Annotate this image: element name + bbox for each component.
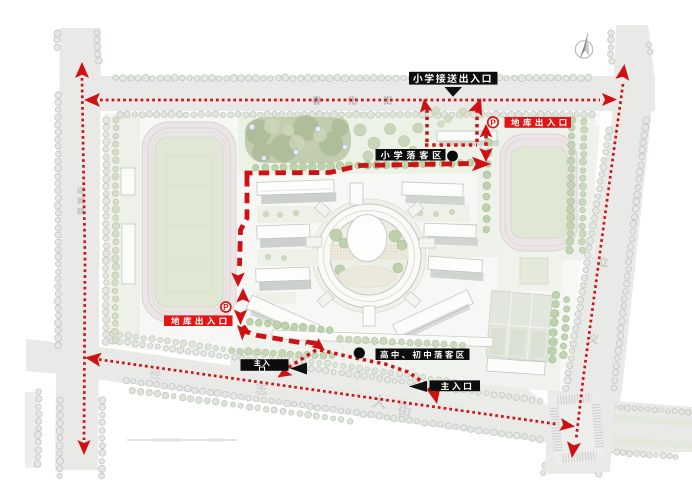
svg-text:P: P — [223, 303, 229, 312]
svg-text:P: P — [490, 118, 496, 128]
